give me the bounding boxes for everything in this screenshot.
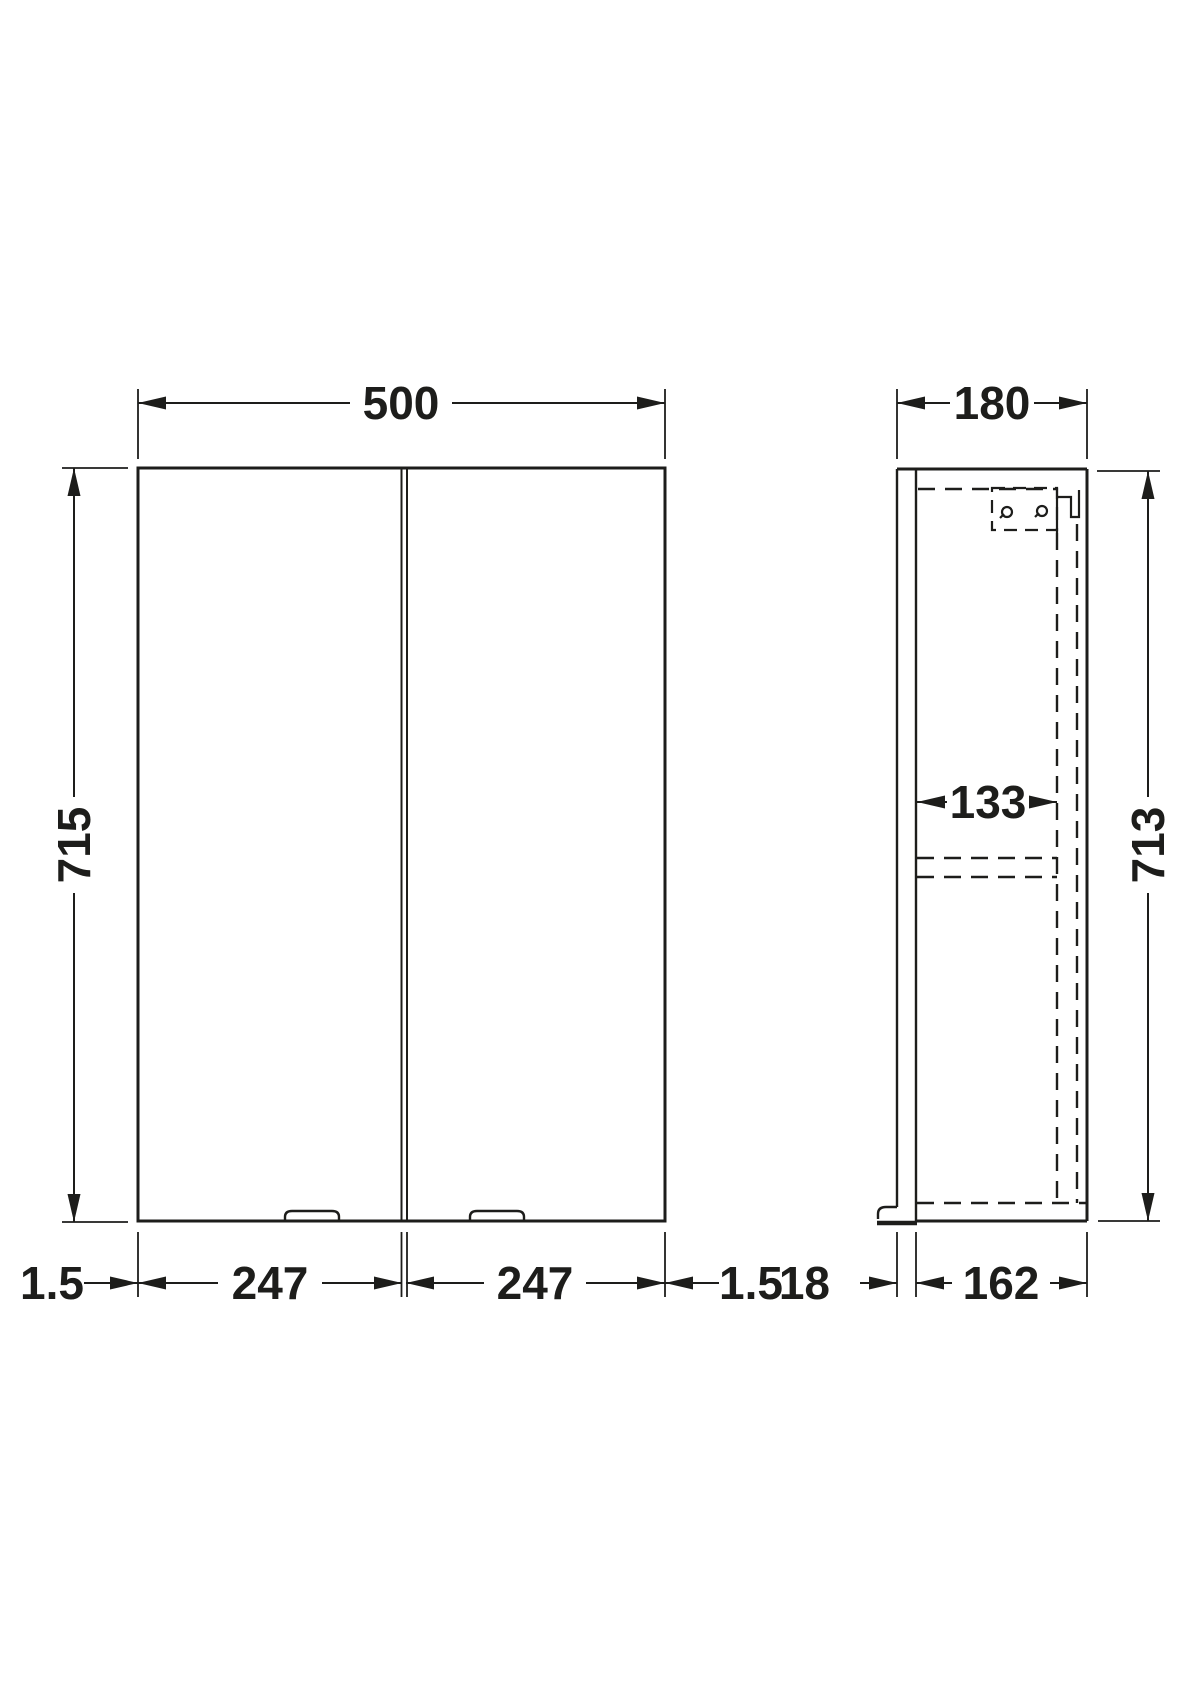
side-cabinet-outline (877, 469, 1087, 1223)
cabinet-dimension-drawing: 500 715 1.5 247 (0, 0, 1200, 1698)
dim-label-front-height: 715 (48, 807, 100, 884)
side-hidden-lines (917, 489, 1087, 1203)
front-view: 500 715 1.5 247 (20, 377, 783, 1309)
dim-label-side-height: 713 (1122, 807, 1174, 884)
arrowhead-left (138, 1277, 166, 1290)
dim-label-front-width: 500 (363, 377, 440, 429)
hanger-screw-right-tick (1035, 513, 1039, 517)
arrowhead-down (1142, 1193, 1155, 1221)
dim-front-overall-width: 500 (138, 377, 665, 459)
arrowhead-down (68, 1194, 81, 1222)
dim-label-left-gap: 1.5 (20, 1257, 84, 1309)
dim-side-internal-depth: 133 (917, 776, 1057, 828)
dim-label-left-door-width: 247 (232, 1257, 309, 1309)
arrowhead-right (110, 1277, 138, 1290)
arrowhead-right (374, 1277, 402, 1290)
dim-front-overall-height: 715 (48, 468, 128, 1222)
dim-label-internal-depth: 133 (950, 776, 1027, 828)
side-view: 180 133 713 18 (779, 377, 1174, 1309)
dim-label-carcass-depth: 162 (963, 1257, 1040, 1309)
arrowhead-right (637, 397, 665, 410)
arrowhead-right (869, 1277, 897, 1290)
hanger-hook (1057, 497, 1079, 517)
arrowhead-left (665, 1277, 693, 1290)
dim-side-overall-height: 713 (1097, 471, 1174, 1221)
dim-side-overall-depth: 180 (897, 377, 1087, 459)
side-door-bottom-lip (878, 1207, 897, 1219)
wall-hanger-bracket (992, 488, 1079, 533)
arrowhead-right (637, 1277, 665, 1290)
arrowhead-up (1142, 471, 1155, 499)
technical-drawing-page: 500 715 1.5 247 (0, 0, 1200, 1698)
arrowhead-up (68, 468, 81, 496)
arrowhead-left (406, 1277, 434, 1290)
arrowhead-right (1059, 397, 1087, 410)
hanger-screw-left-tick (1000, 514, 1004, 518)
arrowhead-left (138, 397, 166, 410)
arrowhead-right (1059, 1277, 1087, 1290)
arrowhead-left (897, 397, 925, 410)
arrowhead-left (917, 796, 945, 809)
dim-front-bottom-row: 1.5 247 247 1.5 (20, 1232, 783, 1309)
dim-label-right-gap: 1.5 (719, 1257, 783, 1309)
arrowhead-left (916, 1277, 944, 1290)
dim-label-side-depth: 180 (954, 377, 1031, 429)
dim-label-door-thickness: 18 (779, 1257, 830, 1309)
arrowhead-right (1029, 796, 1057, 809)
dim-label-right-door-width: 247 (497, 1257, 574, 1309)
front-cabinet-outline (138, 468, 665, 1221)
dim-side-bottom-row: 18 162 (779, 1232, 1087, 1309)
